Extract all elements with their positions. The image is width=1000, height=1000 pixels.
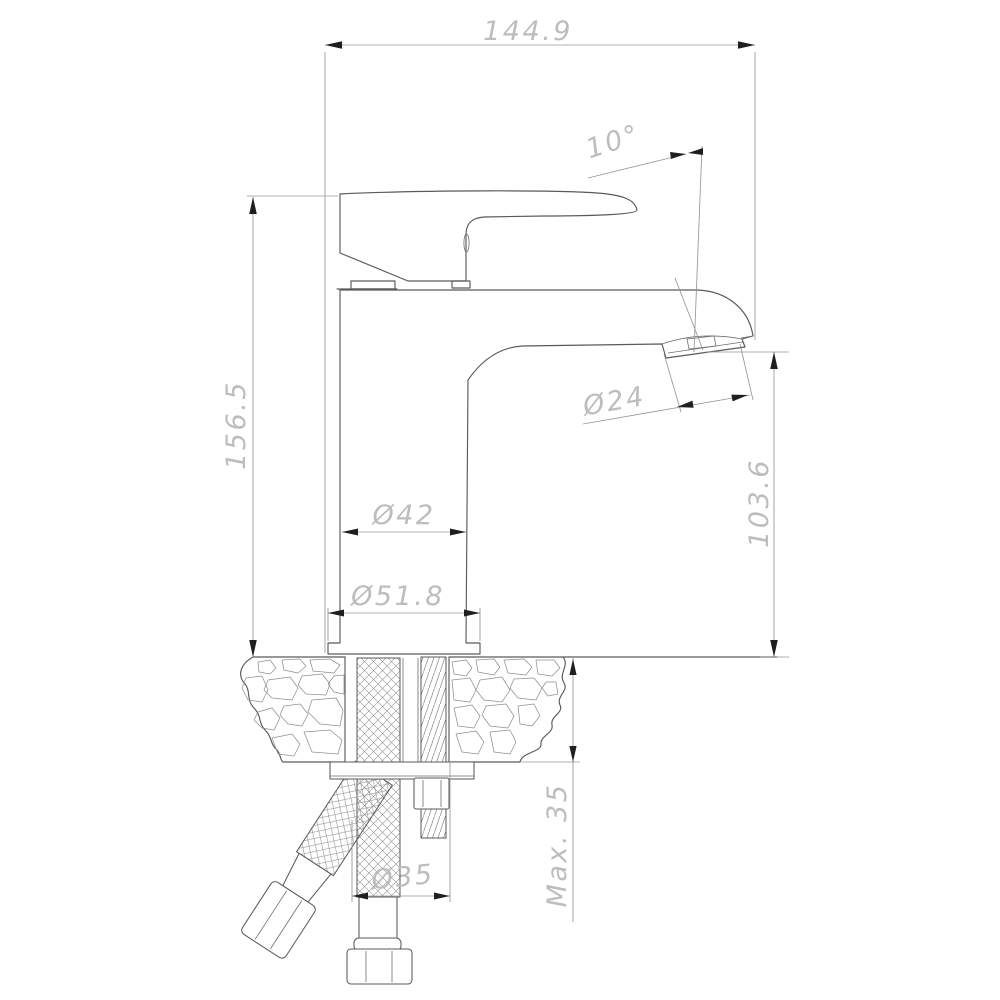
dim-max-deck-thickness-label: Max. 35: [542, 783, 573, 908]
faucet-handle: [337, 191, 637, 289]
dim-spout-height: 103.6: [705, 352, 789, 657]
handle-escutcheon: [351, 281, 395, 289]
hose-edge-lines: [403, 658, 418, 762]
dim-body-diameter-label: Ø42: [371, 500, 435, 531]
dim-total-height: 156.5: [221, 196, 338, 657]
faucet-technical-drawing: 144.9 156.5 10° Ø24 103.6: [0, 0, 1000, 1000]
counter-right-section: [449, 657, 565, 762]
mounting-stud: [421, 657, 446, 838]
dim-base-diameter-label: Ø51.8: [350, 581, 445, 612]
hose-center-fitting: [347, 897, 412, 984]
dim-overall-width-label: 144.9: [483, 16, 573, 47]
technical-drawing-canvas: 144.9 156.5 10° Ø24 103.6: [0, 0, 1000, 1000]
dim-spout-height-label: 103.6: [744, 458, 775, 548]
dim-mounting-hole-diameter-label: Ø35: [369, 859, 436, 897]
dim-aerator-diameter-label: Ø24: [580, 381, 649, 423]
dim-spout-angle-label: 10°: [582, 119, 644, 166]
countertop-section: [241, 657, 777, 762]
hose-center-nut: [347, 949, 412, 984]
washer-plate: [330, 762, 474, 779]
stud-hex-nut: [414, 778, 449, 809]
dim-total-height-label: 156.5: [221, 380, 252, 470]
